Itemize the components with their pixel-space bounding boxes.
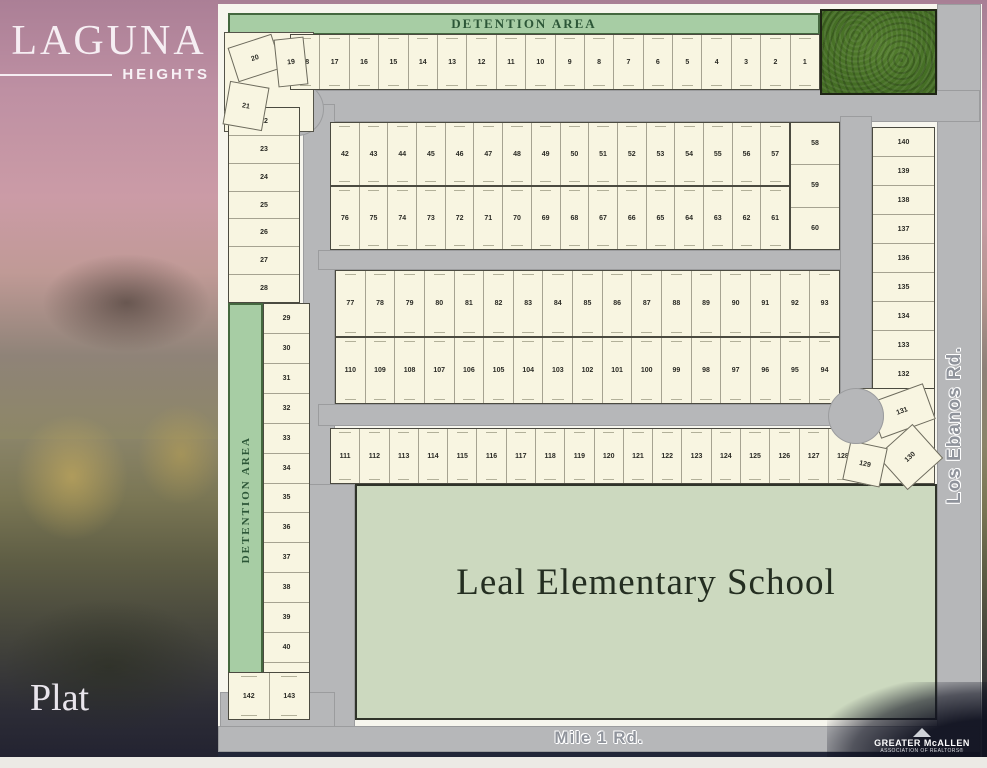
org-subtitle: ASSOCIATION OF REALTORS®	[867, 748, 977, 754]
realtor-association-logo: GREATER McALLEN ASSOCIATION OF REALTORS®	[867, 728, 977, 754]
page-bottom-strip	[0, 757, 987, 768]
lot-number: 24	[260, 174, 268, 181]
lot-number: 81	[465, 300, 473, 307]
lot-number: 12	[478, 59, 486, 66]
plat-marketing-page: { "sidebar": { "logo_primary": "LAGUNA",…	[0, 0, 987, 768]
lot-number: 46	[456, 151, 464, 158]
sidebar-photo-panel: LAGUNA HEIGHTS Plat	[0, 0, 218, 757]
lot-number: 92	[791, 300, 799, 307]
lot-number: 29	[283, 315, 291, 322]
lot-38: 38	[264, 573, 309, 603]
lot-block-top-row: 181716151413121110987654321	[290, 34, 820, 90]
lot-number: 110	[345, 367, 356, 374]
lot-number: 125	[749, 453, 761, 460]
lot-36: 36	[264, 513, 309, 543]
lot-number: 54	[685, 151, 693, 158]
lot-112: 112	[360, 429, 389, 483]
lot-120: 120	[595, 429, 624, 483]
lot-63: 63	[704, 187, 733, 249]
lot-25: 25	[229, 192, 299, 220]
lot-98: 98	[692, 338, 722, 403]
lot-number: 91	[761, 300, 769, 307]
lot-number: 17	[331, 59, 339, 66]
lot-number: 72	[456, 215, 464, 222]
lot-95: 95	[781, 338, 811, 403]
lot-number: 78	[376, 300, 384, 307]
lot-number: 116	[486, 453, 497, 460]
lot-number: 10	[536, 59, 544, 66]
lot-4: 4	[702, 35, 731, 89]
lot-number: 133	[898, 342, 910, 349]
lot-73: 73	[417, 187, 446, 249]
lot-number: 137	[898, 226, 910, 233]
lot-32: 32	[264, 394, 309, 424]
lot-number: 35	[283, 494, 291, 501]
lot-number: 139	[898, 168, 910, 175]
lot-21: 21	[222, 81, 269, 131]
lot-number: 27	[260, 257, 268, 264]
lot-116: 116	[477, 429, 506, 483]
lot-number: 55	[714, 151, 722, 158]
lot-block-stack-58-60: 585960	[790, 122, 840, 250]
lot-19: 19	[274, 37, 309, 88]
lot-47: 47	[474, 123, 503, 185]
lot-123: 123	[682, 429, 711, 483]
lot-number: 69	[542, 215, 550, 222]
lot-number: 96	[761, 367, 769, 374]
lot-74: 74	[388, 187, 417, 249]
lot-66: 66	[618, 187, 647, 249]
lot-68: 68	[561, 187, 590, 249]
lot-51: 51	[589, 123, 618, 185]
lot-number: 43	[370, 151, 378, 158]
lot-number: 60	[811, 225, 819, 232]
lot-number: 94	[821, 367, 829, 374]
lot-124: 124	[712, 429, 741, 483]
lot-block-right-column: 140139138137136135134133132	[872, 127, 935, 389]
lot-78: 78	[366, 271, 396, 336]
lot-number: 61	[771, 215, 779, 222]
lot-number: 37	[283, 554, 291, 561]
lot-84: 84	[543, 271, 573, 336]
lot-104: 104	[514, 338, 544, 403]
lot-42: 42	[331, 123, 360, 185]
lot-117: 117	[507, 429, 536, 483]
lot-60: 60	[791, 208, 839, 249]
lot-number: 84	[554, 300, 562, 307]
laguna-heights-logo: LAGUNA HEIGHTS	[0, 18, 218, 83]
lot-number: 124	[720, 453, 732, 460]
road-label-los-ebanos: Los Ebanos Rd.	[944, 334, 966, 504]
lot-57: 57	[761, 123, 789, 185]
lot-139: 139	[873, 157, 934, 186]
lot-96: 96	[751, 338, 781, 403]
detention-area-left: DETENTION AREA	[228, 303, 263, 697]
lot-number: 80	[435, 300, 443, 307]
lot-59: 59	[791, 165, 839, 207]
logo-secondary-text: HEIGHTS	[122, 66, 210, 83]
lot-106: 106	[455, 338, 485, 403]
lot-37: 37	[264, 543, 309, 573]
lot-102: 102	[573, 338, 603, 403]
lot-number: 129	[859, 459, 872, 468]
lot-number: 42	[341, 151, 349, 158]
lot-90: 90	[721, 271, 751, 336]
lot-23: 23	[229, 136, 299, 164]
lot-108: 108	[395, 338, 425, 403]
lot-89: 89	[692, 271, 722, 336]
lot-88: 88	[662, 271, 692, 336]
detention-area-top-label: DETENTION AREA	[451, 16, 596, 32]
lot-number: 82	[495, 300, 503, 307]
lot-46: 46	[446, 123, 475, 185]
lot-138: 138	[873, 186, 934, 215]
lot-45: 45	[417, 123, 446, 185]
lot-number: 52	[628, 151, 636, 158]
lot-number: 28	[260, 285, 268, 292]
lot-number: 76	[341, 215, 349, 222]
lot-number: 104	[522, 367, 534, 374]
lot-142: 142	[229, 673, 270, 719]
lot-number: 5	[685, 59, 689, 66]
lot-5: 5	[673, 35, 702, 89]
lot-number: 19	[287, 58, 295, 66]
lot-number: 117	[515, 453, 526, 460]
lot-number: 59	[811, 182, 819, 189]
lot-119: 119	[565, 429, 594, 483]
lot-72: 72	[446, 187, 475, 249]
lot-55: 55	[704, 123, 733, 185]
lot-number: 93	[821, 300, 829, 307]
lot-86: 86	[603, 271, 633, 336]
lot-number: 112	[369, 453, 380, 460]
lot-9: 9	[556, 35, 585, 89]
lot-76: 76	[331, 187, 360, 249]
lot-number: 79	[406, 300, 414, 307]
lot-56: 56	[733, 123, 762, 185]
lot-52: 52	[618, 123, 647, 185]
lot-number: 68	[570, 215, 578, 222]
lot-number: 11	[507, 59, 514, 66]
lot-number: 16	[360, 59, 368, 66]
lot-number: 100	[641, 367, 653, 374]
lot-114: 114	[419, 429, 448, 483]
lot-number: 25	[260, 202, 268, 209]
detention-area-top: DETENTION AREA	[228, 13, 820, 35]
lot-number: 66	[628, 215, 636, 222]
lot-number: 83	[524, 300, 532, 307]
lot-number: 87	[643, 300, 651, 307]
lot-number: 77	[346, 300, 354, 307]
lot-140: 140	[873, 128, 934, 157]
lot-33: 33	[264, 424, 309, 454]
lot-number: 140	[898, 139, 910, 146]
lot-number: 6	[656, 59, 660, 66]
lot-number: 13	[448, 59, 456, 66]
lot-block-band3: 7778798081828384858687888990919293	[335, 270, 840, 337]
lot-number: 9	[568, 59, 572, 66]
lot-24: 24	[229, 164, 299, 192]
lot-2: 2	[761, 35, 790, 89]
lot-number: 134	[898, 313, 910, 320]
plat-map: DETENTION AREA DETENTION AREA Leal Eleme…	[218, 4, 982, 757]
lot-number: 138	[898, 197, 910, 204]
lot-number: 99	[672, 367, 680, 374]
lot-number: 32	[283, 405, 291, 412]
lot-143: 143	[270, 673, 310, 719]
lot-number: 30	[283, 345, 291, 352]
lot-number: 31	[283, 375, 291, 382]
lot-number: 70	[513, 215, 521, 222]
lot-94: 94	[810, 338, 839, 403]
lot-number: 97	[732, 367, 740, 374]
lot-number: 50	[570, 151, 578, 158]
lot-75: 75	[360, 187, 389, 249]
lot-number: 44	[398, 151, 406, 158]
lot-number: 15	[389, 59, 397, 66]
lot-111: 111	[331, 429, 360, 483]
logo-divider-line	[0, 74, 112, 76]
lot-block-band4: 1101091081071061051041031021011009998979…	[335, 337, 840, 404]
lot-number: 34	[283, 465, 291, 472]
lot-block-bottom-pair: 142143	[228, 672, 310, 720]
lot-17: 17	[320, 35, 349, 89]
lot-number: 67	[599, 215, 607, 222]
lot-27: 27	[229, 247, 299, 275]
lot-number: 4	[715, 59, 719, 66]
lot-79: 79	[395, 271, 425, 336]
lot-number: 75	[370, 215, 378, 222]
lot-97: 97	[721, 338, 751, 403]
lot-58: 58	[791, 123, 839, 165]
lot-12: 12	[467, 35, 496, 89]
mountain-icon	[913, 728, 931, 737]
lot-34: 34	[264, 454, 309, 484]
lot-70: 70	[503, 187, 532, 249]
lot-133: 133	[873, 331, 934, 360]
lot-29: 29	[264, 304, 309, 334]
lot-number: 114	[427, 453, 438, 460]
lot-number: 8	[597, 59, 601, 66]
lot-number: 113	[398, 453, 409, 460]
lot-number: 120	[603, 453, 615, 460]
lot-93: 93	[810, 271, 839, 336]
lot-number: 98	[702, 367, 710, 374]
lot-number: 1	[803, 59, 807, 66]
lot-125: 125	[741, 429, 770, 483]
lot-103: 103	[543, 338, 573, 403]
lot-69: 69	[532, 187, 561, 249]
lot-81: 81	[455, 271, 485, 336]
lot-block-band5: 1111121131141151161171181191201211221231…	[330, 428, 858, 484]
lot-block-band1: 42434445464748495051525354555657	[330, 122, 790, 186]
lot-136: 136	[873, 244, 934, 273]
lot-14: 14	[409, 35, 438, 89]
lot-number: 103	[552, 367, 564, 374]
lot-137: 137	[873, 215, 934, 244]
lot-28: 28	[229, 275, 299, 302]
lot-number: 106	[463, 367, 475, 374]
lot-44: 44	[388, 123, 417, 185]
lot-number: 105	[493, 367, 505, 374]
lot-number: 23	[260, 146, 268, 153]
lot-number: 57	[771, 151, 779, 158]
lot-number: 115	[457, 453, 468, 460]
lot-92: 92	[781, 271, 811, 336]
lot-110: 110	[336, 338, 366, 403]
lot-100: 100	[632, 338, 662, 403]
lot-105: 105	[484, 338, 514, 403]
lot-number: 108	[404, 367, 416, 374]
lot-number: 88	[672, 300, 680, 307]
lot-13: 13	[438, 35, 467, 89]
logo-primary-text: LAGUNA	[0, 18, 218, 64]
lot-number: 56	[743, 151, 751, 158]
lot-number: 107	[433, 367, 445, 374]
lot-number: 89	[702, 300, 710, 307]
lot-15: 15	[379, 35, 408, 89]
lot-91: 91	[751, 271, 781, 336]
lot-number: 102	[582, 367, 594, 374]
lot-number: 123	[691, 453, 703, 460]
lot-number: 33	[283, 435, 291, 442]
lot-87: 87	[632, 271, 662, 336]
lot-129: 129	[842, 440, 887, 487]
lot-number: 86	[613, 300, 621, 307]
lot-26: 26	[229, 219, 299, 247]
lot-54: 54	[675, 123, 704, 185]
lot-99: 99	[662, 338, 692, 403]
lot-number: 63	[714, 215, 722, 222]
lot-126: 126	[770, 429, 799, 483]
lot-number: 64	[685, 215, 693, 222]
lot-39: 39	[264, 603, 309, 633]
lot-number: 74	[398, 215, 406, 222]
lot-64: 64	[675, 187, 704, 249]
lot-number: 39	[283, 614, 291, 621]
lot-number: 20	[250, 53, 260, 62]
lot-number: 71	[484, 215, 492, 222]
lot-number: 51	[599, 151, 607, 158]
lot-31: 31	[264, 364, 309, 394]
lot-number: 127	[808, 453, 820, 460]
road-right-vertical	[840, 116, 872, 406]
lot-40: 40	[264, 633, 309, 663]
lot-121: 121	[624, 429, 653, 483]
lot-10: 10	[526, 35, 555, 89]
lot-number: 58	[811, 140, 819, 147]
lot-49: 49	[532, 123, 561, 185]
lot-number: 47	[484, 151, 492, 158]
lot-number: 132	[898, 371, 910, 378]
lot-135: 135	[873, 273, 934, 302]
park-green-space	[820, 9, 937, 95]
lot-number: 14	[419, 59, 427, 66]
lot-number: 136	[898, 255, 910, 262]
lot-number: 95	[791, 367, 799, 374]
lot-number: 7	[627, 59, 631, 66]
lot-7: 7	[614, 35, 643, 89]
lot-number: 73	[427, 215, 435, 222]
lot-number: 101	[611, 367, 623, 374]
lot-number: 143	[283, 693, 295, 700]
lot-number: 122	[661, 453, 673, 460]
lot-number: 90	[732, 300, 740, 307]
lot-block-band2: 76757473727170696867666564636261	[330, 186, 790, 250]
lot-30: 30	[264, 334, 309, 364]
lot-number: 2	[773, 59, 777, 66]
lot-number: 85	[584, 300, 592, 307]
org-name: GREATER McALLEN	[867, 738, 977, 748]
lot-85: 85	[573, 271, 603, 336]
lot-113: 113	[390, 429, 419, 483]
lot-8: 8	[585, 35, 614, 89]
page-title: Plat	[30, 676, 89, 720]
lot-number: 36	[283, 524, 291, 531]
lot-16: 16	[350, 35, 379, 89]
lot-number: 3	[744, 59, 748, 66]
lot-35: 35	[264, 484, 309, 514]
lot-11: 11	[497, 35, 526, 89]
lot-number: 40	[283, 644, 291, 651]
lot-77: 77	[336, 271, 366, 336]
lot-101: 101	[603, 338, 633, 403]
lot-109: 109	[366, 338, 396, 403]
school-label: Leal Elementary School	[456, 561, 836, 604]
lot-number: 38	[283, 584, 291, 591]
lot-number: 142	[243, 693, 255, 700]
lot-53: 53	[647, 123, 676, 185]
lot-62: 62	[733, 187, 762, 249]
detention-area-left-label: DETENTION AREA	[240, 436, 252, 563]
lot-number: 130	[903, 450, 916, 463]
lot-number: 48	[513, 151, 521, 158]
lot-number: 53	[657, 151, 665, 158]
lot-82: 82	[484, 271, 514, 336]
lot-number: 49	[542, 151, 550, 158]
lot-1: 1	[791, 35, 819, 89]
lot-number: 135	[898, 284, 910, 291]
lot-number: 111	[340, 453, 351, 460]
lot-block-left-lower: 29303132333435363738394041	[263, 303, 310, 693]
lot-61: 61	[761, 187, 789, 249]
lot-number: 65	[657, 215, 665, 222]
road-middle-lower	[318, 404, 863, 426]
lot-65: 65	[647, 187, 676, 249]
lot-number: 131	[895, 406, 908, 417]
road-middle-upper	[318, 250, 875, 270]
lot-number: 21	[242, 102, 251, 110]
cul-de-sac-southeast	[828, 388, 884, 444]
lot-number: 26	[260, 229, 268, 236]
lot-block-left-upper: 22232425262728	[228, 107, 300, 303]
lot-134: 134	[873, 302, 934, 331]
lot-number: 45	[427, 151, 435, 158]
lot-80: 80	[425, 271, 455, 336]
lot-number: 121	[632, 453, 644, 460]
lot-67: 67	[589, 187, 618, 249]
lot-118: 118	[536, 429, 565, 483]
lot-number: 118	[544, 453, 555, 460]
lot-83: 83	[514, 271, 544, 336]
lot-number: 62	[743, 215, 751, 222]
lot-71: 71	[474, 187, 503, 249]
lot-115: 115	[448, 429, 477, 483]
lot-3: 3	[732, 35, 761, 89]
lot-132: 132	[873, 360, 934, 388]
lot-50: 50	[561, 123, 590, 185]
lot-48: 48	[503, 123, 532, 185]
